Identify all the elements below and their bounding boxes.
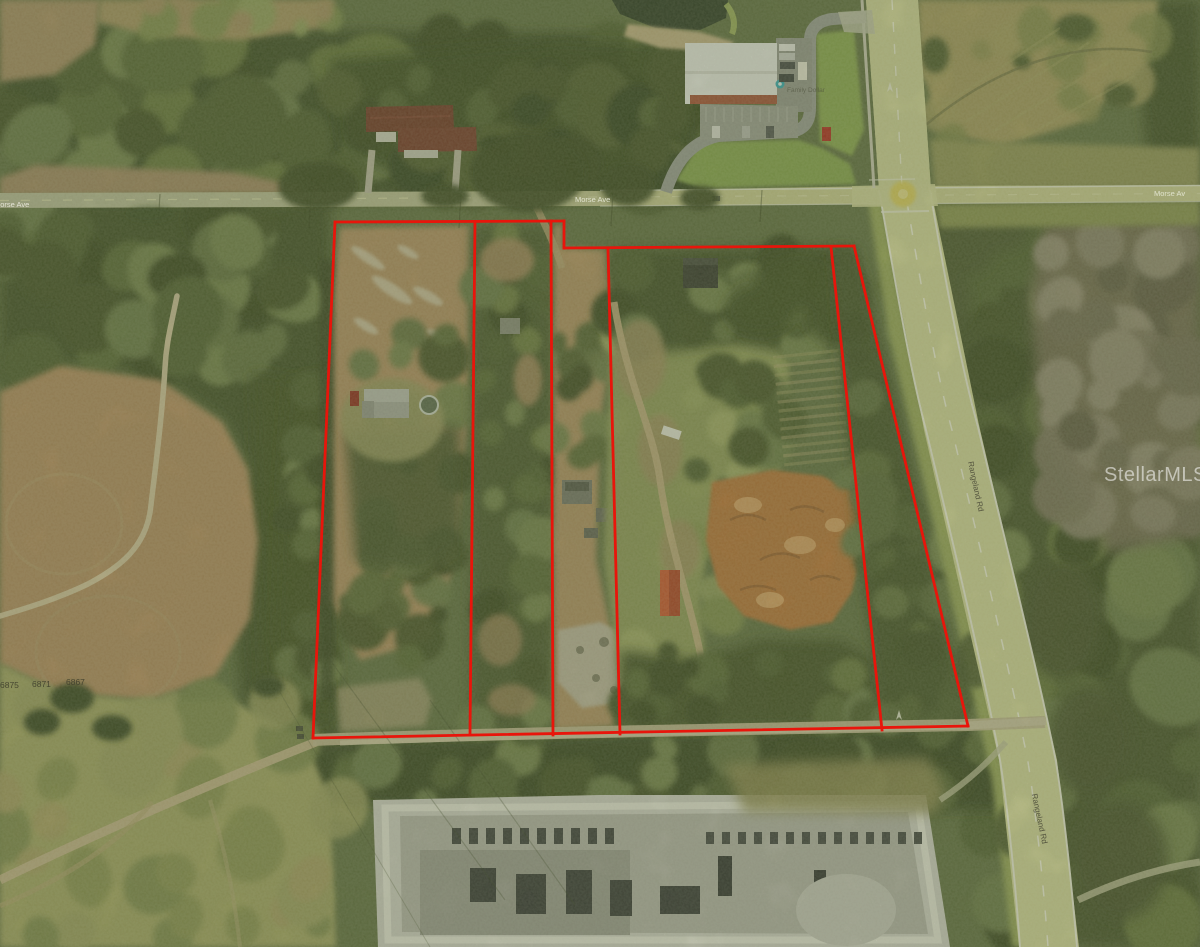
svg-text:6867: 6867 [66, 677, 85, 687]
svg-text:6871: 6871 [32, 679, 51, 689]
svg-text:Morse Av: Morse Av [1154, 189, 1185, 198]
svg-text:6875: 6875 [0, 680, 19, 690]
svg-text:Morse Ave: Morse Ave [575, 195, 610, 204]
svg-text:Morse Ave: Morse Ave [0, 200, 29, 209]
svg-text:StellarMLS: StellarMLS [1104, 464, 1200, 486]
